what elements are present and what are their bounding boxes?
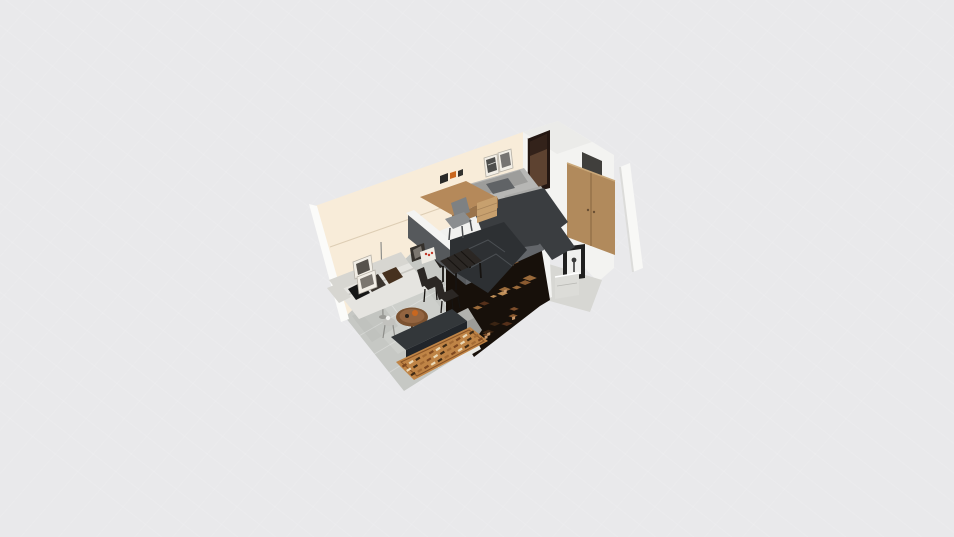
table-top-inner — [400, 309, 425, 323]
wardrobe-handle — [593, 211, 595, 213]
mirror-reflection — [572, 258, 577, 263]
kettle — [386, 316, 390, 320]
table-decor-dark — [405, 314, 409, 318]
table-decor-orange — [412, 310, 418, 316]
chair-leg — [462, 226, 463, 238]
dining-table-leg — [480, 263, 481, 278]
red-book — [431, 252, 433, 254]
floor-lamp-base — [379, 315, 387, 319]
wardrobe-handle — [587, 209, 589, 211]
red-book — [425, 253, 427, 255]
app-viewport — [0, 0, 954, 537]
red-book — [428, 254, 430, 256]
chair-leg — [449, 228, 450, 240]
floorplan-3d-viewport[interactable] — [0, 0, 954, 537]
